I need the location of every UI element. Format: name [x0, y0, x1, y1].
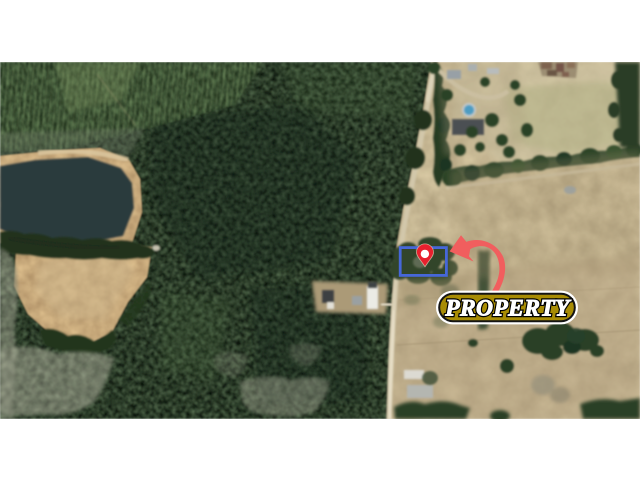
svg-text:PROPERTY: PROPERTY [444, 296, 572, 322]
